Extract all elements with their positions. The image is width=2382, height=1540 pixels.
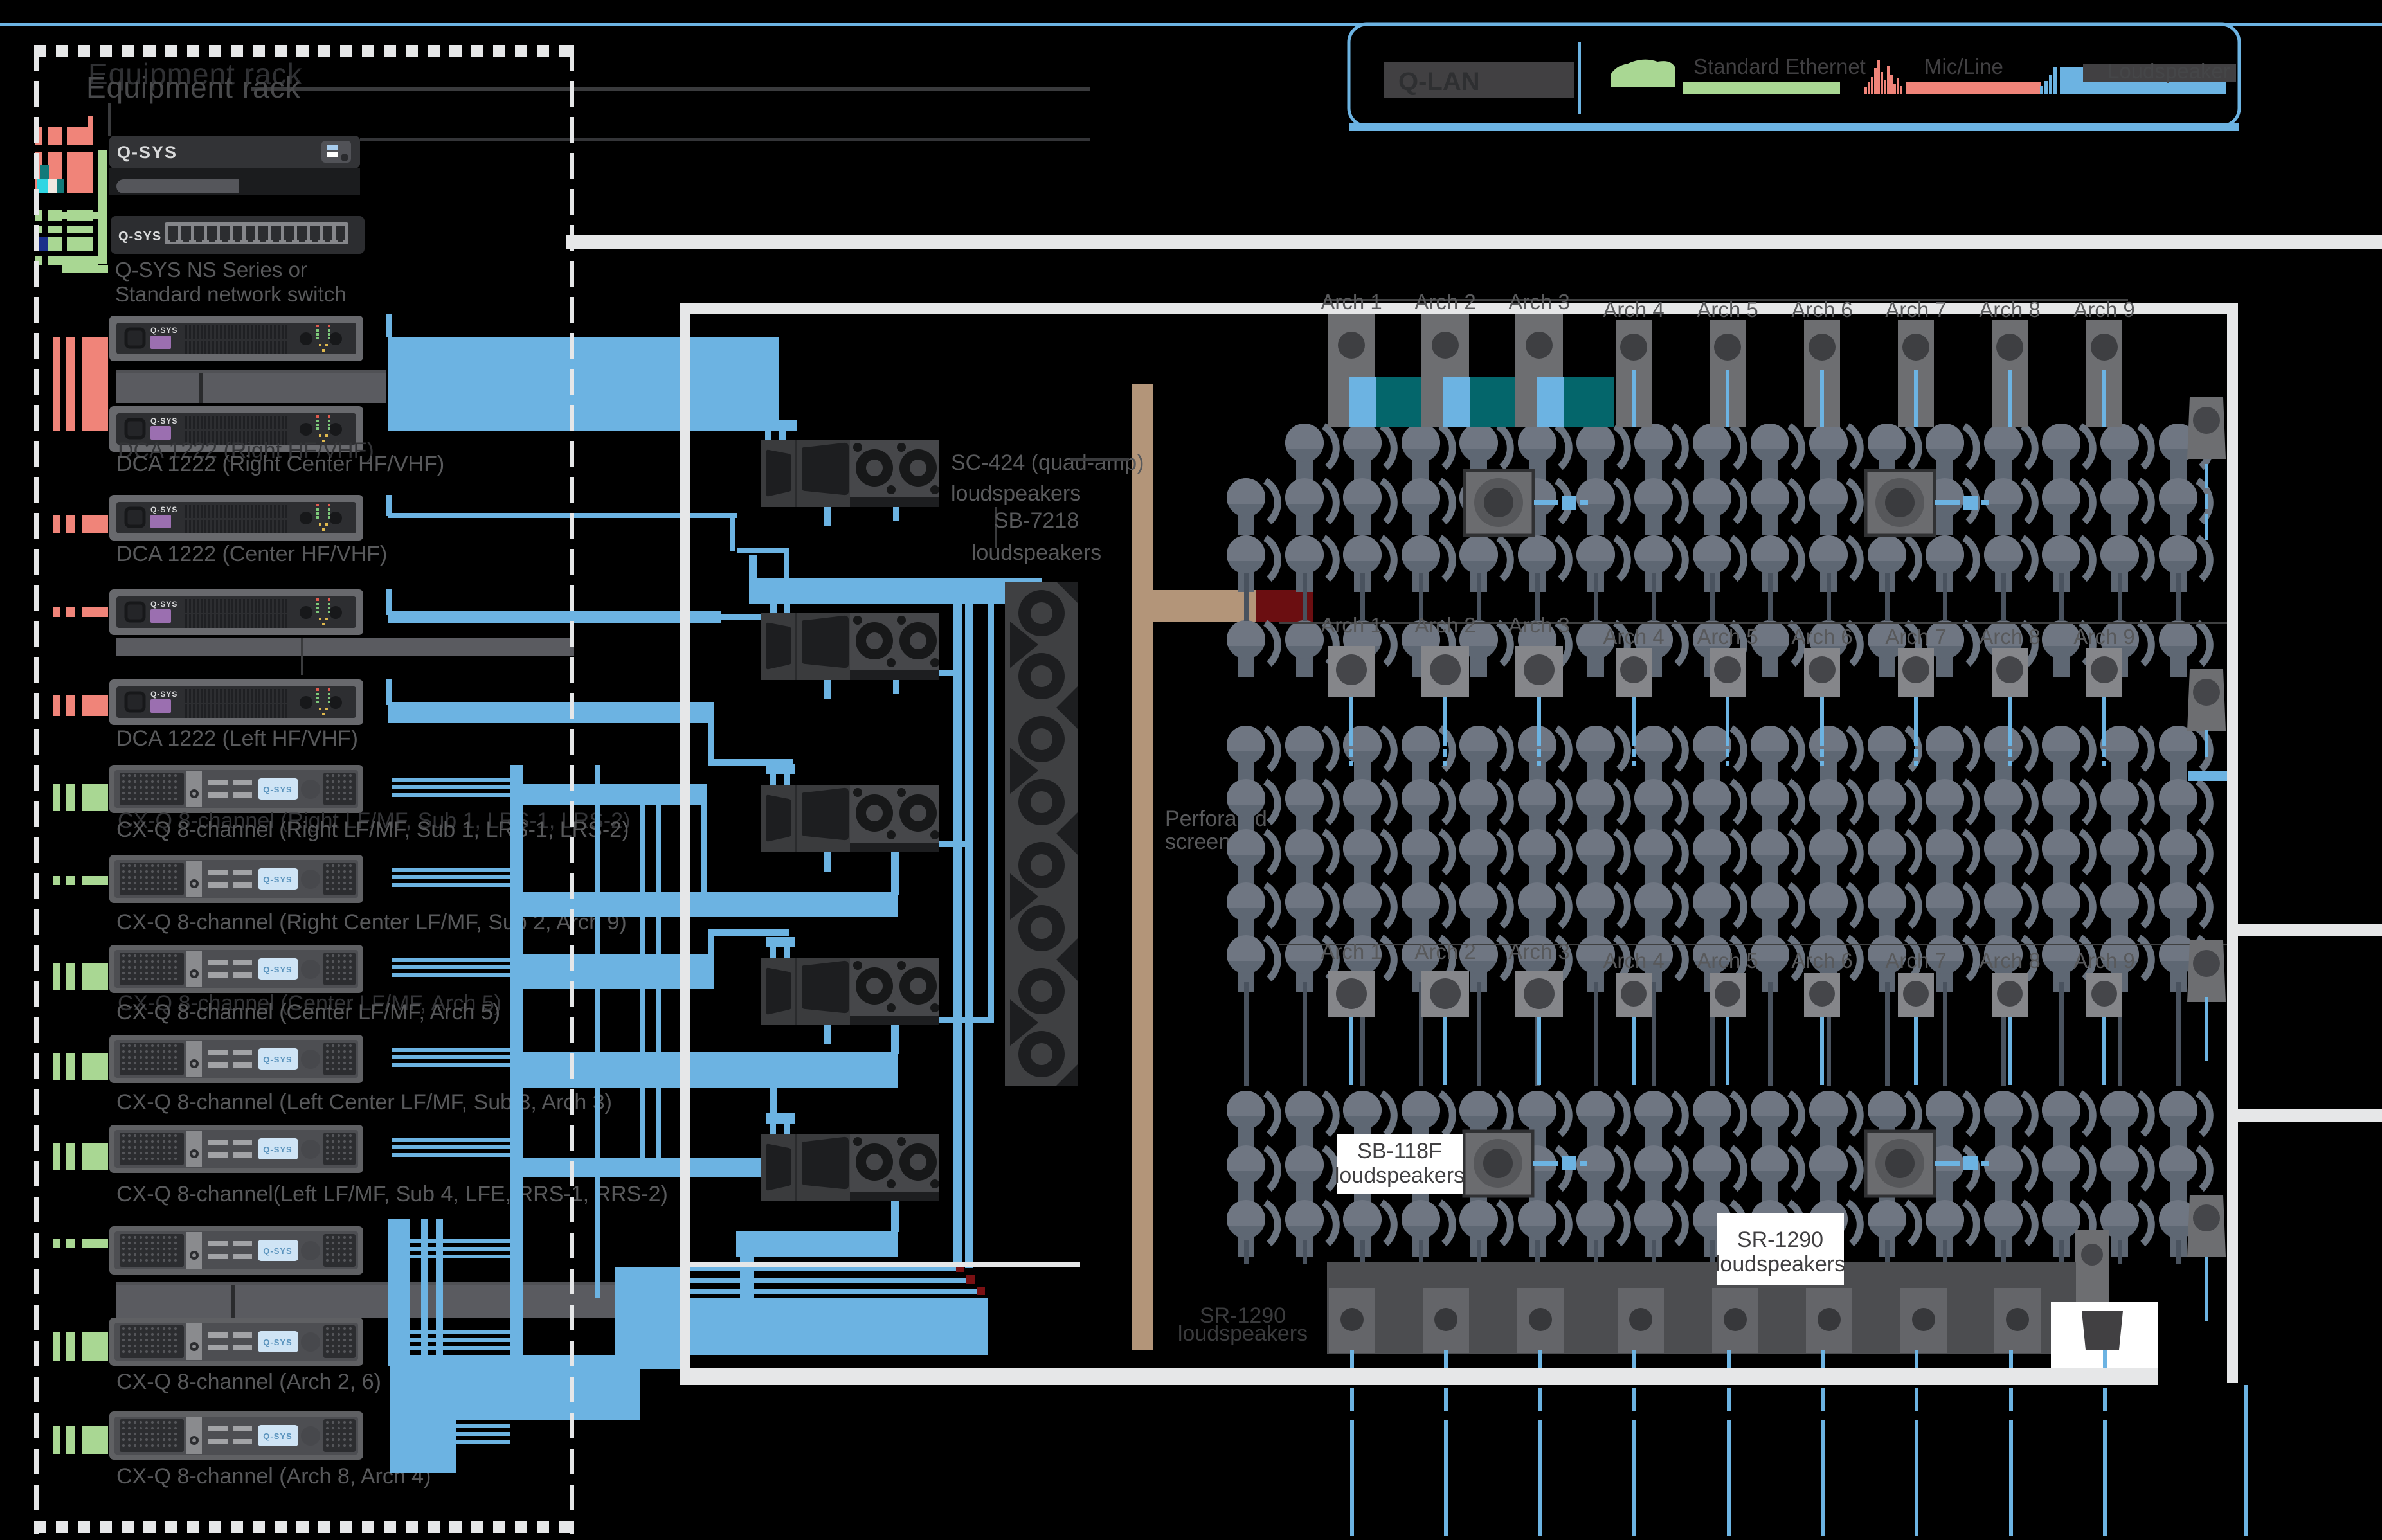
svg-text:loudspeakers: loudspeakers [1715, 1252, 1845, 1276]
svg-text:Q-SYS NS Series or: Q-SYS NS Series or [115, 258, 307, 282]
svg-text:Arch 8: Arch 8 [1979, 298, 2040, 321]
svg-text:Arch 4: Arch 4 [1603, 625, 1664, 649]
svg-text:Arch 4: Arch 4 [1603, 949, 1664, 972]
svg-text:Arch 5: Arch 5 [1697, 625, 1758, 649]
svg-text:Arch 4: Arch 4 [1603, 298, 1664, 321]
svg-text:Arch 7: Arch 7 [1885, 298, 1946, 321]
svg-text:Arch 6: Arch 6 [1791, 298, 1852, 321]
svg-text:Q-LAN: Q-LAN [1398, 67, 1480, 96]
svg-text:Equipment rack: Equipment rack [86, 71, 301, 104]
svg-text:Arch 5: Arch 5 [1697, 298, 1758, 321]
svg-text:loudspeakers: loudspeakers [1178, 1321, 1308, 1346]
svg-text:SB-7218: SB-7218 [994, 508, 1079, 533]
svg-text:Q-SYS: Q-SYS [118, 229, 161, 244]
svg-text:Arch 9: Arch 9 [2073, 949, 2134, 972]
svg-text:CX-Q 8-channel(Left LF/MF, Sub: CX-Q 8-channel(Left LF/MF, Sub 4, LFE, R… [116, 1182, 668, 1206]
svg-text:CX-Q 8-channel (Left Center LF: CX-Q 8-channel (Left Center LF/MF, Sub 3… [116, 1090, 612, 1115]
svg-text:Loudspeaker: Loudspeaker [2107, 59, 2230, 83]
svg-text:Arch 8: Arch 8 [1979, 625, 2040, 649]
svg-text:Arch 9: Arch 9 [2073, 625, 2134, 649]
svg-text:DCA 1222 (Left HF/VHF): DCA 1222 (Left HF/VHF) [116, 726, 358, 751]
svg-text:Mic/Line: Mic/Line [1924, 55, 2003, 78]
svg-text:SB-118F: SB-118F [1357, 1139, 1442, 1163]
svg-text:DCA 1222 (Center HF/VHF): DCA 1222 (Center HF/VHF) [116, 542, 387, 566]
svg-text:Arch 6: Arch 6 [1791, 949, 1852, 972]
svg-text:DCA 1222 (Right Center HF/VHF): DCA 1222 (Right Center HF/VHF) [116, 452, 444, 476]
svg-text:CX-Q 8-channel (Center LF/MF,: CX-Q 8-channel (Center LF/MF, Arch 5) [116, 1000, 500, 1025]
svg-text:Standard Ethernet: Standard Ethernet [1693, 55, 1866, 78]
svg-text:Arch 1: Arch 1 [1321, 940, 1382, 963]
svg-text:Arch 3: Arch 3 [1508, 290, 1569, 314]
svg-text:Arch 1: Arch 1 [1321, 613, 1382, 637]
svg-text:screen: screen [1165, 830, 1231, 854]
svg-text:Arch 7: Arch 7 [1885, 625, 1946, 649]
svg-text:Arch 3: Arch 3 [1508, 613, 1569, 637]
svg-text:CX-Q 8-channel (Arch 8, Arch 4: CX-Q 8-channel (Arch 8, Arch 4) [116, 1464, 431, 1489]
svg-text:Q-SYS: Q-SYS [117, 143, 177, 162]
svg-text:loudspeakers: loudspeakers [971, 541, 1101, 565]
svg-text:loudspeakers: loudspeakers [951, 481, 1081, 506]
svg-text:CX-Q 8-channel (Right LF/MF, S: CX-Q 8-channel (Right LF/MF, Sub 1, LRS-… [116, 818, 629, 842]
svg-text:Arch 2: Arch 2 [1414, 940, 1475, 963]
svg-text:Arch 6: Arch 6 [1791, 625, 1852, 649]
svg-text:SC-424 (quad-amp): SC-424 (quad-amp) [951, 451, 1144, 475]
svg-text:SR-1290: SR-1290 [1737, 1228, 1823, 1252]
svg-text:Arch 8: Arch 8 [1979, 949, 2040, 972]
svg-text:Arch 7: Arch 7 [1885, 949, 1946, 972]
svg-text:Standard network switch: Standard network switch [115, 282, 347, 306]
svg-text:Arch 2: Arch 2 [1414, 290, 1475, 314]
svg-text:Arch 2: Arch 2 [1414, 613, 1475, 637]
svg-text:Arch 9: Arch 9 [2073, 298, 2134, 321]
svg-text:Arch 5: Arch 5 [1697, 949, 1758, 972]
svg-text:CX-Q 8-channel (Arch 2, 6): CX-Q 8-channel (Arch 2, 6) [116, 1370, 381, 1394]
svg-text:Arch 3: Arch 3 [1508, 940, 1569, 963]
svg-text:loudspeakers: loudspeakers [1335, 1163, 1465, 1188]
svg-text:Arch 1: Arch 1 [1321, 290, 1382, 314]
